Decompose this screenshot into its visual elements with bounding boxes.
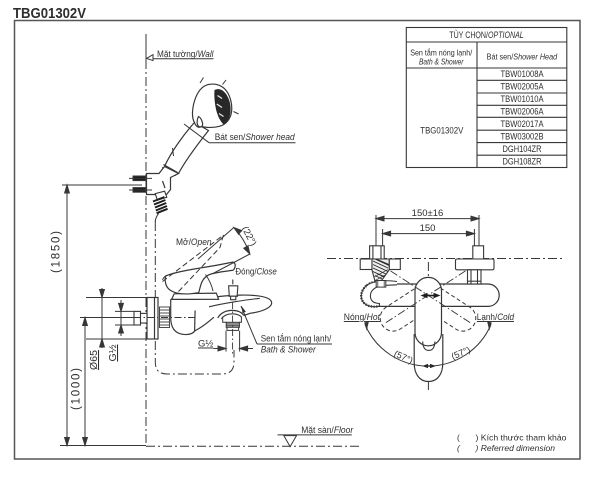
svg-text:DGH108ZR: DGH108ZR bbox=[503, 156, 542, 166]
svg-text:Bát sen/Shower head: Bát sen/Shower head bbox=[215, 132, 296, 143]
svg-text:DGH104ZR: DGH104ZR bbox=[503, 144, 542, 154]
svg-text:) Kích thước tham khảo: ) Kích thước tham khảo bbox=[476, 432, 567, 442]
svg-text:TÙY CHỌN/OPTIONAL: TÙY CHỌN/OPTIONAL bbox=[449, 30, 524, 40]
svg-text:G½: G½ bbox=[198, 339, 213, 350]
svg-text:TBG01302V: TBG01302V bbox=[420, 126, 463, 136]
svg-text:150±16: 150±16 bbox=[412, 208, 444, 219]
svg-text:Bath & Shower: Bath & Shower bbox=[261, 345, 317, 356]
svg-text:(22°): (22°) bbox=[239, 225, 258, 248]
svg-text:G½: G½ bbox=[107, 344, 119, 361]
svg-text:(1850): (1850) bbox=[51, 231, 63, 273]
svg-text:Bath & Shower: Bath & Shower bbox=[419, 57, 464, 67]
svg-text:TBW01008A: TBW01008A bbox=[501, 69, 544, 79]
svg-text:Mặt sàn/Floor: Mặt sàn/Floor bbox=[301, 425, 354, 436]
svg-text:Nóng/Hot: Nóng/Hot bbox=[344, 312, 381, 323]
svg-text:(: ( bbox=[457, 432, 460, 442]
svg-text:(: ( bbox=[457, 443, 461, 453]
svg-text:) Referred dimension: ) Referred dimension bbox=[474, 443, 555, 453]
svg-text:Bát sen/Shower Head: Bát sen/Shower Head bbox=[487, 52, 558, 62]
svg-text:Đóng/Close: Đóng/Close bbox=[235, 267, 276, 278]
svg-text:(57°): (57°) bbox=[393, 348, 415, 365]
svg-text:Sen tắm nóng lạnh/: Sen tắm nóng lạnh/ bbox=[261, 334, 332, 345]
svg-text:(1000): (1000) bbox=[71, 368, 83, 410]
svg-text:TBW02006A: TBW02006A bbox=[501, 106, 544, 116]
svg-text:TBW02017A: TBW02017A bbox=[501, 119, 544, 129]
svg-text:150: 150 bbox=[420, 223, 436, 234]
svg-text:Mở/Open: Mở/Open bbox=[176, 237, 212, 248]
svg-text:Lạnh/Cold: Lạnh/Cold bbox=[477, 312, 515, 323]
svg-text:TBW02005A: TBW02005A bbox=[501, 82, 544, 92]
svg-text:TBW03002B: TBW03002B bbox=[501, 131, 544, 141]
svg-text:(57°): (57°) bbox=[450, 344, 472, 361]
svg-text:TBW01010A: TBW01010A bbox=[501, 94, 544, 104]
svg-text:Ø65: Ø65 bbox=[88, 350, 100, 370]
